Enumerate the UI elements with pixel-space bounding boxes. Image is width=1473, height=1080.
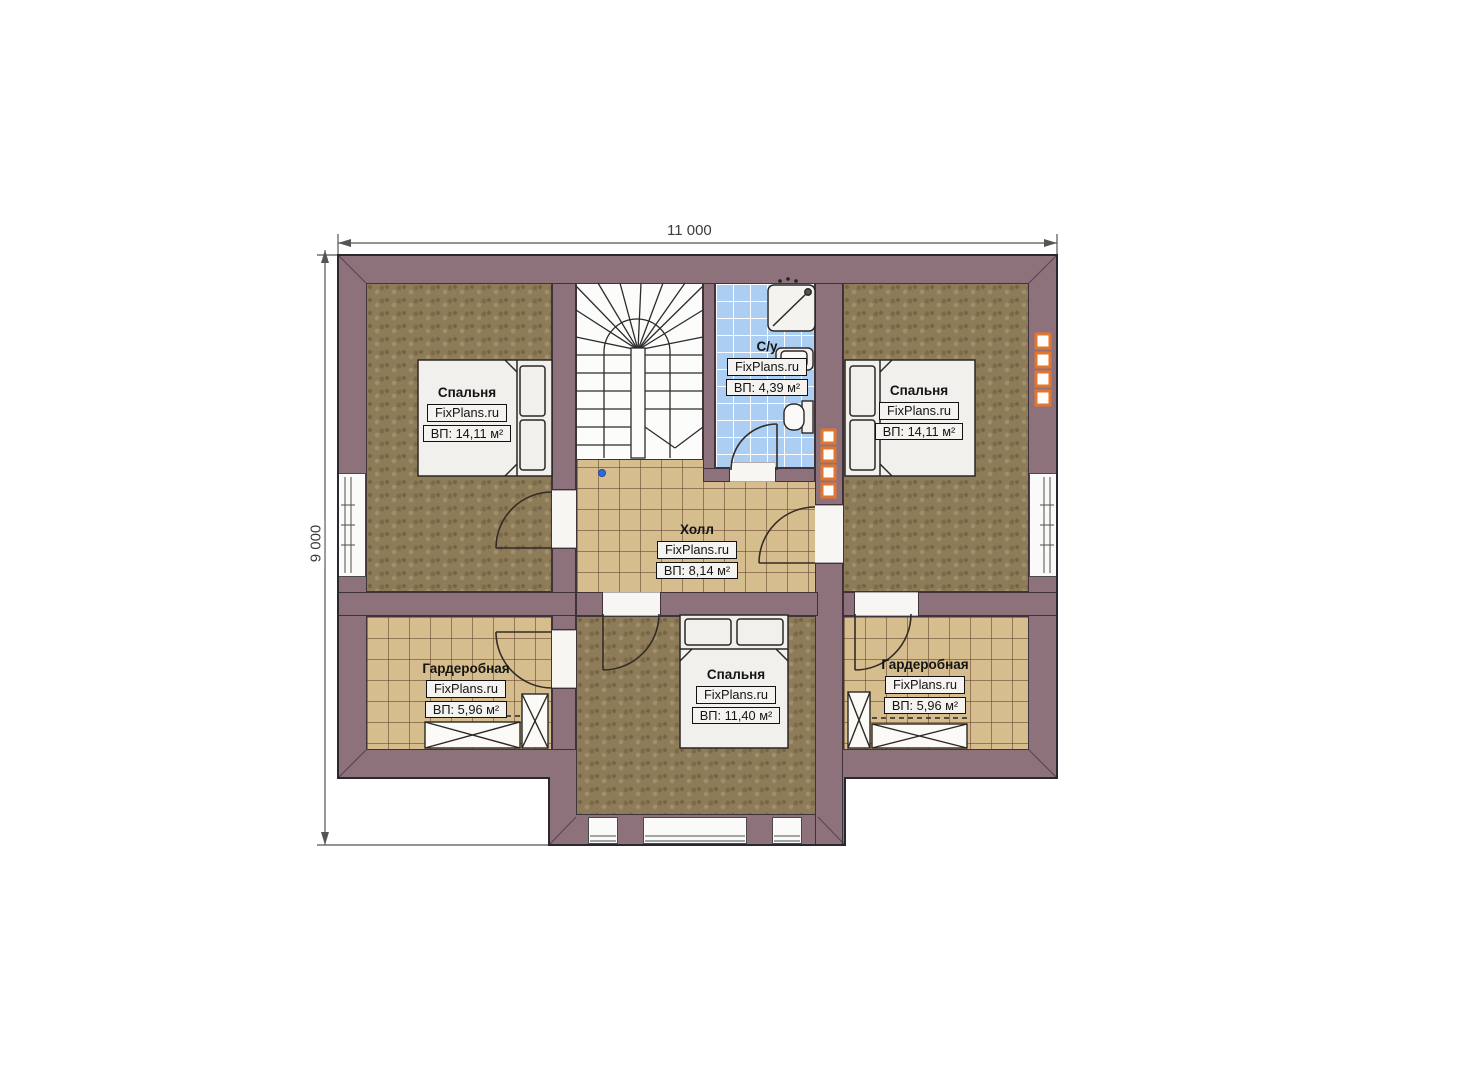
- room-label-bedroom-bottom: Спальня FixPlans.ru ВП: 11,40 м²: [656, 668, 816, 725]
- window-left-wall: [337, 473, 366, 577]
- room-name: Спальня: [387, 386, 547, 400]
- room-area-badge: ВП: 8,14 м²: [656, 562, 738, 579]
- wall-horizontal-center-b: [660, 592, 818, 616]
- wall-left-vertical-lower: [552, 688, 576, 750]
- stairs-floor: [576, 283, 703, 460]
- dimension-top-label: 11 000: [662, 222, 717, 239]
- floor-plan: 11 000 9 000 Спальня FixPlans.ru ВП: 14,…: [0, 0, 1473, 1080]
- wall-left-vertical-mid: [552, 548, 576, 630]
- doorway-wardrobe-right: [855, 592, 918, 616]
- room-label-bathroom: С/у FixPlans.ru ВП: 4,39 м²: [687, 340, 847, 397]
- bathroom-bottom-wall-b: [775, 468, 815, 482]
- room-area-badge: ВП: 14,11 м²: [875, 423, 964, 440]
- wall-horizontal-right-a: [843, 592, 855, 616]
- room-name: С/у: [687, 340, 847, 354]
- watermark-badge: FixPlans.ru: [657, 541, 737, 558]
- wall-horizontal-right-b: [918, 592, 1057, 616]
- doorway-bedroom-left: [552, 490, 576, 548]
- watermark-badge: FixPlans.ru: [427, 404, 507, 421]
- window-bottom-small-right: [772, 817, 802, 844]
- dimension-left-label: 9 000: [307, 520, 324, 568]
- watermark-badge: FixPlans.ru: [426, 680, 506, 697]
- bathroom-bottom-wall-a: [703, 468, 730, 482]
- room-name: Спальня: [656, 668, 816, 682]
- room-name: Гардеробная: [386, 662, 546, 676]
- wall-horizontal-center-a: [576, 592, 603, 616]
- window-bottom-small-left: [588, 817, 618, 844]
- wall-left-vertical-upper: [552, 283, 576, 490]
- doorway-bedroom-bottom: [603, 592, 660, 616]
- wall-horizontal-left: [338, 592, 576, 616]
- window-bottom-wide: [643, 817, 747, 844]
- room-label-wardrobe-right: Гардеробная FixPlans.ru ВП: 5,96 м²: [845, 658, 1005, 715]
- watermark-badge: FixPlans.ru: [696, 686, 776, 703]
- room-area-badge: ВП: 14,11 м²: [423, 425, 512, 442]
- room-area-badge: ВП: 5,96 м²: [884, 697, 966, 714]
- room-label-bedroom-top-right: Спальня FixPlans.ru ВП: 14,11 м²: [839, 384, 999, 441]
- watermark-badge: FixPlans.ru: [727, 358, 807, 375]
- doorway-wardrobe-left: [552, 630, 576, 688]
- room-name: Холл: [617, 523, 777, 537]
- wall-right-vertical-lower: [815, 563, 843, 845]
- watermark-badge: FixPlans.ru: [879, 402, 959, 419]
- room-label-wardrobe-left: Гардеробная FixPlans.ru ВП: 5,96 м²: [386, 662, 546, 719]
- window-right-wall: [1029, 473, 1058, 577]
- room-label-hall: Холл FixPlans.ru ВП: 8,14 м²: [617, 523, 777, 580]
- room-area-badge: ВП: 4,39 м²: [726, 379, 808, 396]
- doorway-bedroom-right: [815, 505, 843, 563]
- room-name: Гардеробная: [845, 658, 1005, 672]
- room-name: Спальня: [839, 384, 999, 398]
- room-label-bedroom-top-left: Спальня FixPlans.ru ВП: 14,11 м²: [387, 386, 547, 443]
- watermark-badge: FixPlans.ru: [885, 676, 965, 693]
- doorway-bathroom: [730, 462, 775, 482]
- room-area-badge: ВП: 5,96 м²: [425, 701, 507, 718]
- room-area-badge: ВП: 11,40 м²: [692, 707, 781, 724]
